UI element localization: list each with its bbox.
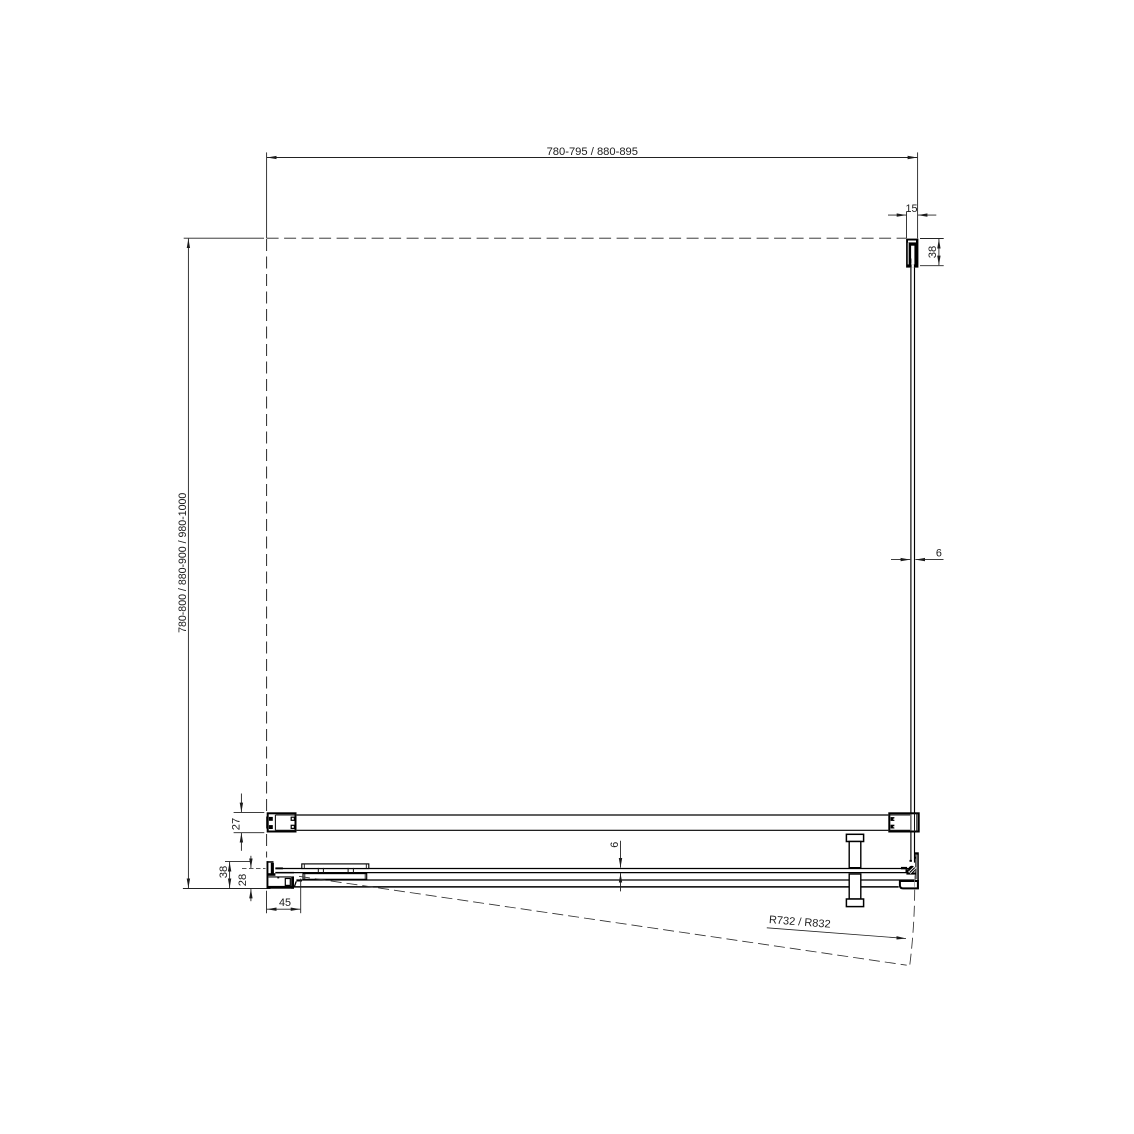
svg-text:15: 15 (905, 203, 917, 215)
svg-text:38: 38 (927, 246, 939, 258)
svg-text:6: 6 (609, 842, 621, 848)
svg-text:780-795 / 880-895: 780-795 / 880-895 (547, 146, 638, 158)
svg-text:28: 28 (237, 874, 249, 886)
svg-text:6: 6 (936, 548, 942, 560)
svg-text:45: 45 (279, 897, 291, 909)
svg-text:27: 27 (231, 818, 243, 830)
svg-text:38: 38 (218, 866, 230, 878)
svg-text:780-800 / 880-900 / 980-1000: 780-800 / 880-900 / 980-1000 (177, 493, 189, 633)
